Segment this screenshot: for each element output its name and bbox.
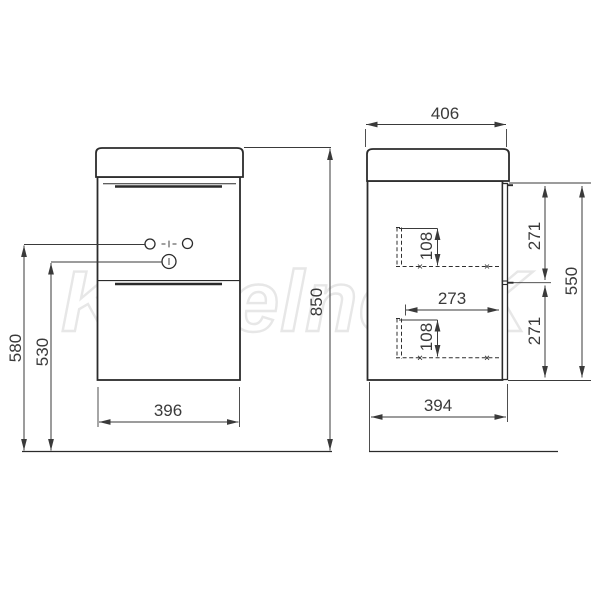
dim-faucet-height: 580	[6, 246, 25, 451]
dim-396-label: 396	[154, 401, 182, 420]
vanity-dimension-drawing: KupelneSK	[0, 0, 600, 600]
faucet-hole-left-icon	[145, 239, 155, 249]
dim-850-label: 850	[307, 288, 326, 316]
faucet-hole-right-icon	[183, 239, 193, 249]
dim-108-upper-label: 108	[417, 232, 436, 260]
dim-lower-drawer-height: 108	[417, 320, 438, 357]
dim-271-lower-label: 271	[525, 317, 544, 345]
dim-530-label: 530	[33, 338, 52, 366]
dim-top-depth: 406	[366, 104, 506, 125]
front-cabinet-body	[98, 177, 241, 380]
technical-drawing-page: KupelneSK	[0, 0, 600, 600]
dim-cabinet-width: 396	[99, 401, 239, 422]
dim-273-label: 273	[438, 289, 466, 308]
dim-580-label: 580	[6, 334, 25, 362]
dim-550-label: 550	[562, 267, 581, 295]
front-washbasin	[96, 148, 243, 177]
dim-drain-height: 530	[33, 263, 52, 451]
dim-394-label: 394	[424, 396, 452, 415]
dim-body-height: 550	[562, 186, 582, 378]
dim-108-lower-label: 108	[417, 323, 436, 351]
dim-upper-drawer-height: 108	[417, 229, 438, 266]
side-view: 406 108 108 273 271 271 550 394	[366, 104, 592, 452]
dim-406-label: 406	[431, 104, 459, 123]
dim-271-upper-label: 271	[525, 222, 544, 250]
dim-cabinet-depth: 394	[371, 396, 506, 417]
side-washbasin	[367, 149, 509, 181]
